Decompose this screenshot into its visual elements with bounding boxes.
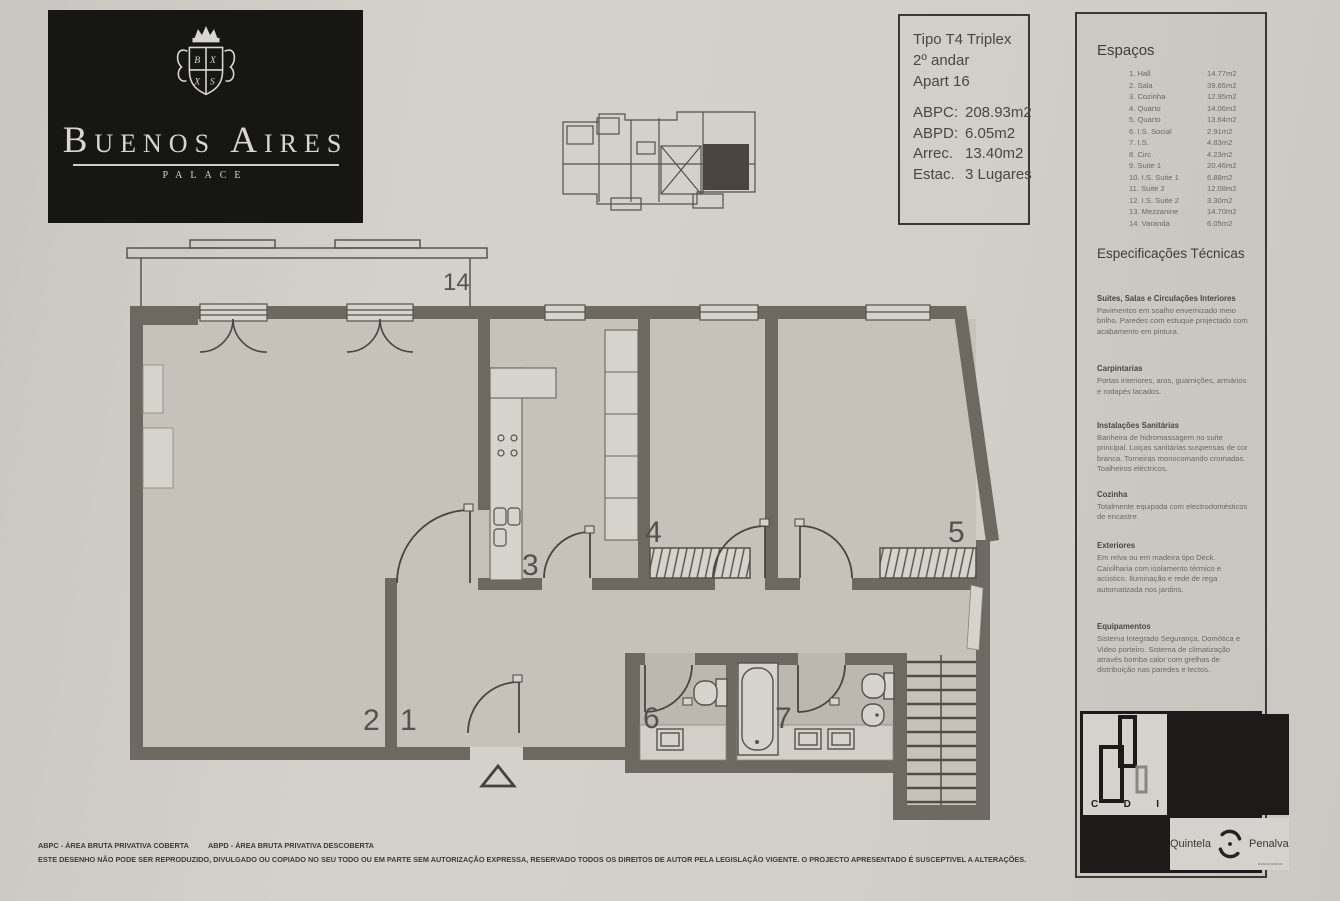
room-label-bedroom-b: 5 — [948, 516, 965, 549]
space-row: 12. I.S. Suite 23.30m2 — [1129, 195, 1265, 207]
room-label-wc-suite: 7 — [775, 702, 792, 735]
spec-body: Pavimentos em soalho envernizado meio br… — [1097, 306, 1251, 337]
space-name: 11. Suite 2 — [1129, 183, 1207, 195]
footer-abbr-abpc: ABPC - ÁREA BRUTA PRIVATIVA COBERTA — [38, 841, 189, 850]
space-name: 7. I.S. — [1129, 137, 1207, 149]
space-row: 6. I.S. Social2.91m2 — [1129, 126, 1265, 138]
space-name: 3. Cozinha — [1129, 91, 1207, 103]
space-row: 8. Circ.4.23m2 — [1129, 149, 1265, 161]
spec-section: Carpintarias Portas interiores, aros, gu… — [1097, 364, 1251, 397]
space-row: 14. Varanda6.05m2 — [1129, 218, 1265, 230]
space-row: 5. Quarto13.64m2 — [1129, 114, 1265, 126]
space-area: 6.05m2 — [1207, 219, 1232, 228]
logo-grid-black-cell — [1170, 714, 1289, 815]
space-area: 13.64m2 — [1207, 115, 1237, 124]
spec-section: Cozinha Totalmente equipada com electrod… — [1097, 490, 1251, 523]
spec-body: Banheira de hidromassagem no suite princ… — [1097, 433, 1251, 475]
space-row: 7. I.S.4.83m2 — [1129, 137, 1265, 149]
space-area: 12.08m2 — [1207, 184, 1237, 193]
spec-section: Suites, Salas e Circulações Interiores P… — [1097, 294, 1251, 337]
bidet-icon — [862, 704, 884, 726]
agency-subtext: associados — [1258, 861, 1283, 866]
space-name: 14. Varanda — [1129, 218, 1207, 230]
spec-heading: Instalações Sanitárias — [1097, 421, 1251, 430]
space-area: 14.06m2 — [1207, 104, 1237, 113]
space-name: 6. I.S. Social — [1129, 126, 1207, 138]
cdi-letter-c: C — [1091, 799, 1098, 810]
space-area: 6.88m2 — [1207, 173, 1232, 182]
space-area: 4.23m2 — [1207, 150, 1232, 159]
space-name: 9. Suite 1 — [1129, 160, 1207, 172]
cdi-letters: C D I — [1091, 799, 1159, 810]
room-label-bedroom-a: 4 — [645, 516, 662, 549]
spec-section: Instalações Sanitárias Banheira de hidro… — [1097, 421, 1251, 475]
space-row: 3. Cozinha12.95m2 — [1129, 91, 1265, 103]
footer-abbr-abpd: ABPD - ÁREA BRUTA PRIVATIVA DESCOBERTA — [208, 841, 374, 850]
room-label-hall: 1 — [400, 704, 417, 737]
agency-name-right: Penalva — [1249, 838, 1289, 850]
space-area: 39.65m2 — [1207, 81, 1237, 90]
agency-swirl-icon — [1217, 829, 1243, 859]
spec-heading: Cozinha — [1097, 490, 1251, 499]
spaces-title: Espaços — [1097, 42, 1265, 59]
logo-grid-black-cell — [1083, 818, 1167, 870]
cdi-logo: C D I — [1083, 714, 1167, 815]
spec-heading: Exteriores — [1097, 541, 1251, 550]
space-area: 12.95m2 — [1207, 92, 1237, 101]
balcony — [127, 240, 487, 306]
space-row: 1. Hall14.77m2 — [1129, 68, 1265, 80]
space-area: 2.91m2 — [1207, 127, 1232, 136]
room-label-balcony: 14 — [443, 269, 470, 296]
space-name: 1. Hall — [1129, 68, 1207, 80]
space-name: 13. Mezzanine — [1129, 206, 1207, 218]
space-name: 10. I.S. Suite 1 — [1129, 172, 1207, 184]
spec-body: Em relva ou em madeira tipo Deck. Caixil… — [1097, 553, 1251, 595]
space-area: 14.70m2 — [1207, 207, 1237, 216]
space-row: 4. Quarto14.06m2 — [1129, 103, 1265, 115]
scanned-floorplan-sheet: { "colors": {"paper":"#d1cdc8","wall":"#… — [0, 0, 1340, 901]
space-row: 9. Suite 120.46m2 — [1129, 160, 1265, 172]
space-name: 2. Sala — [1129, 80, 1207, 92]
space-row: 11. Suite 212.08m2 — [1129, 183, 1265, 195]
space-row: 2. Sala39.65m2 — [1129, 80, 1265, 92]
spec-section: Equipamentos Sistema Integrado Segurança… — [1097, 622, 1251, 676]
spec-section: Exteriores Em relva ou em madeira tipo D… — [1097, 541, 1251, 595]
space-row: 13. Mezzanine14.70m2 — [1129, 206, 1265, 218]
room-label-wc-social: 6 — [643, 702, 660, 735]
spec-body: Portas interiores, aros, guarnições, arm… — [1097, 376, 1251, 397]
room-label-living: 2 — [363, 704, 380, 737]
space-row: 10. I.S. Suite 16.88m2 — [1129, 172, 1265, 184]
space-area: 20.46m2 — [1207, 161, 1237, 170]
space-name: 5. Quarto — [1129, 114, 1207, 126]
spec-heading: Equipamentos — [1097, 622, 1251, 631]
spec-body: Totalmente equipada com electrodoméstico… — [1097, 502, 1251, 523]
logo-grid: C D I Quintela Penalva associados — [1080, 711, 1262, 873]
cdi-letter-i: I — [1156, 799, 1159, 810]
space-area: 3.30m2 — [1207, 196, 1232, 205]
room-label-kitchen: 3 — [522, 549, 539, 582]
spaces-list: 1. Hall14.77m2 2. Sala39.65m2 3. Cozinha… — [1129, 68, 1265, 229]
cdi-logo-icon — [1083, 714, 1167, 809]
agency-logo: Quintela Penalva associados — [1170, 818, 1289, 870]
space-name: 12. I.S. Suite 2 — [1129, 195, 1207, 207]
spec-heading: Suites, Salas e Circulações Interiores — [1097, 294, 1251, 303]
space-area: 14.77m2 — [1207, 69, 1237, 78]
footer-disclaimer: ESTE DESENHO NÃO PODE SER REPRODUZIDO, D… — [38, 855, 1026, 864]
spec-body: Sistema Integrado Segurança, Domótica e … — [1097, 634, 1251, 676]
specs-title: Especificações Técnicas — [1097, 246, 1265, 261]
spec-heading: Carpintarias — [1097, 364, 1251, 373]
spec-panel: Espaços 1. Hall14.77m2 2. Sala39.65m2 3.… — [1075, 12, 1267, 878]
cdi-letter-d: D — [1124, 799, 1131, 810]
space-name: 8. Circ. — [1129, 149, 1207, 161]
space-area: 4.83m2 — [1207, 138, 1232, 147]
space-name: 4. Quarto — [1129, 103, 1207, 115]
entrance-arrow-icon — [482, 766, 514, 786]
agency-name-left: Quintela — [1170, 838, 1211, 850]
